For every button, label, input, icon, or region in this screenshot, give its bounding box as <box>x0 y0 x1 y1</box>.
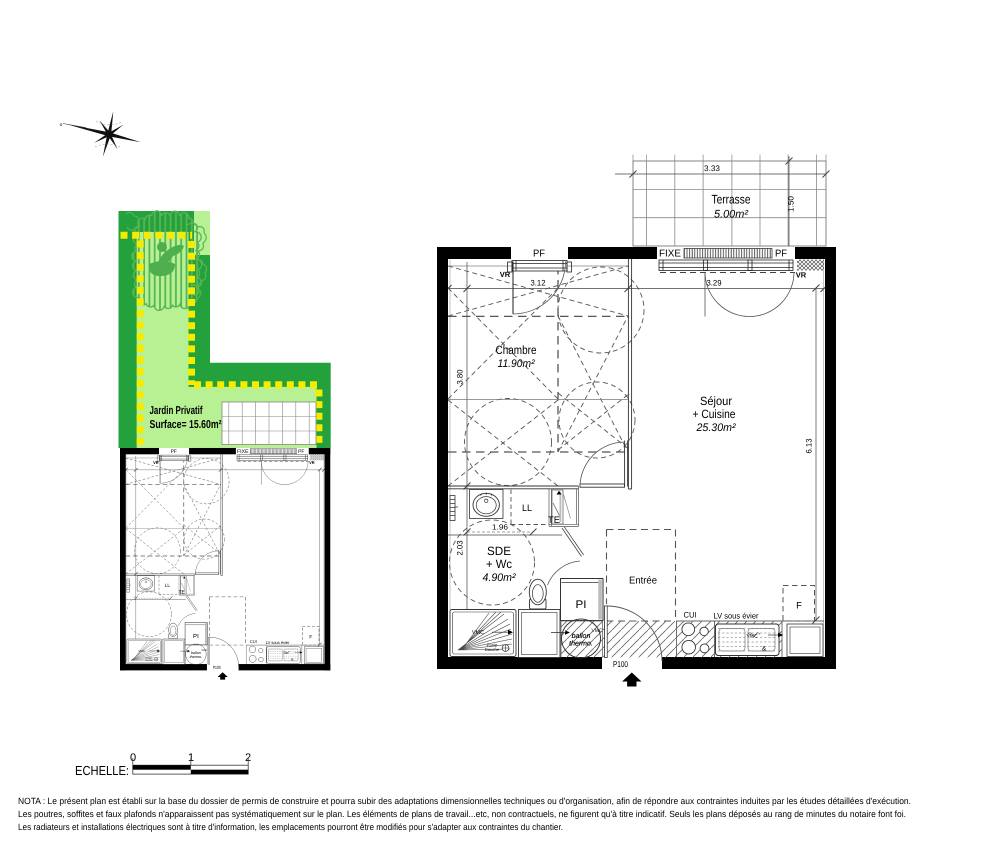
svg-text:o: o <box>60 122 63 128</box>
svg-text:2.03: 2.03 <box>456 540 465 556</box>
svg-text:Chambre: Chambre <box>496 343 537 357</box>
svg-text:Surface= 15.60m²: Surface= 15.60m² <box>150 419 222 431</box>
svg-text:Terrasse: Terrasse <box>712 193 751 207</box>
svg-text:ballon: ballon <box>572 632 591 640</box>
svg-text:Séjour: Séjour <box>700 394 732 408</box>
svg-text:Les radiateurs et installation: Les radiateurs et installations électriq… <box>18 822 563 832</box>
svg-text:1.96: 1.96 <box>492 523 508 532</box>
svg-text:4.90m²: 4.90m² <box>483 572 516 584</box>
svg-text:NOTA : Le présent plan est éta: NOTA : Le présent plan est établi sur la… <box>18 796 911 806</box>
svg-text:+ Wc: + Wc <box>486 557 512 571</box>
svg-text:+ Cuisine: + Cuisine <box>693 407 736 421</box>
svg-text:3.80: 3.80 <box>456 369 465 385</box>
svg-text:6.13: 6.13 <box>805 438 814 454</box>
svg-text:SDE: SDE <box>487 544 511 558</box>
svg-text:ECHELLE:: ECHELLE: <box>75 763 129 778</box>
svg-text:thermo.: thermo. <box>569 640 593 648</box>
svg-text:1.50: 1.50 <box>787 195 796 212</box>
svg-text:Entrée: Entrée <box>629 576 657 587</box>
svg-text:Jardin Privatif: Jardin Privatif <box>150 405 203 417</box>
svg-text:&: & <box>762 646 767 653</box>
svg-text:25.30m²: 25.30m² <box>696 422 736 434</box>
svg-text:3.29: 3.29 <box>707 279 723 288</box>
svg-text:11.90m²: 11.90m² <box>498 358 535 370</box>
svg-text:3.12: 3.12 <box>531 279 547 288</box>
svg-text:3.33: 3.33 <box>704 164 721 173</box>
svg-text:5.00m²: 5.00m² <box>714 209 748 221</box>
svg-text:Les poutres, soffites et faux: Les poutres, soffites et faux plafonds n… <box>18 809 906 819</box>
